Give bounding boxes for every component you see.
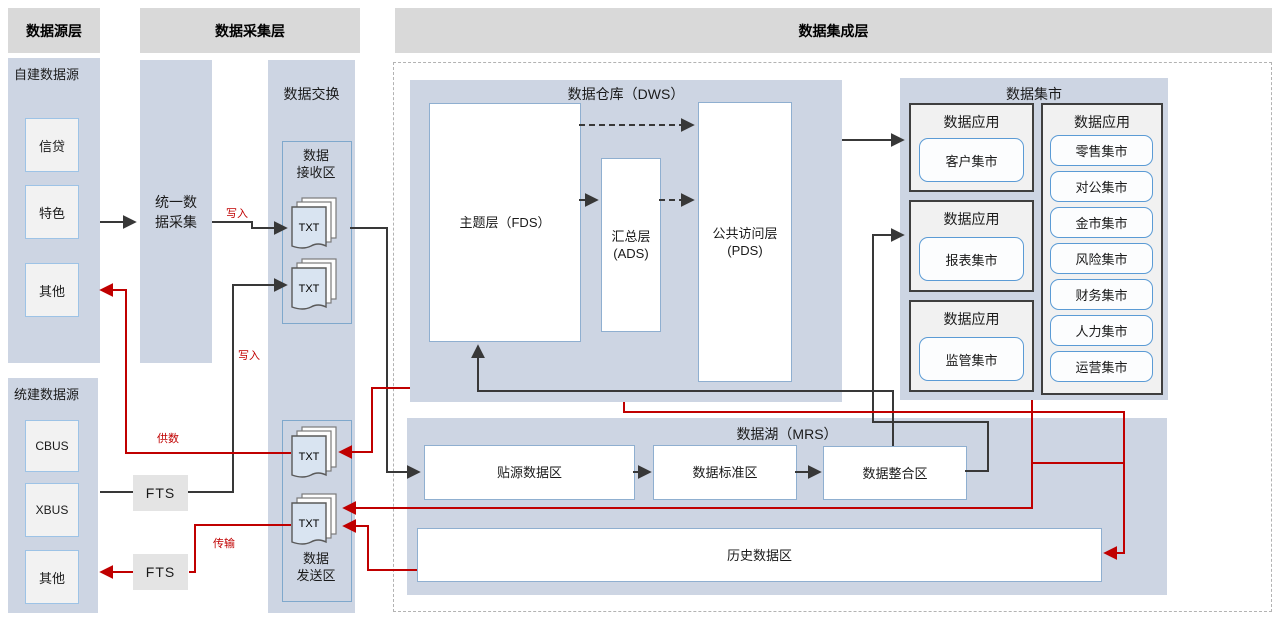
mart-gold: 金市集市: [1050, 207, 1153, 238]
source-box-special: 特色: [25, 185, 79, 239]
svg-text:TXT: TXT: [299, 451, 320, 463]
dws-title: 数据仓库（DWS）: [410, 84, 842, 104]
txt-file-icon: TXT: [291, 426, 337, 478]
fts-box-lower: FTS: [133, 554, 188, 590]
self-built-sources-title: 自建数据源: [14, 64, 100, 83]
flow-label-transfer: 传输: [213, 535, 235, 551]
data-exchange-title: 数据交换: [268, 84, 355, 104]
source-box-credit: 信贷: [25, 118, 79, 172]
data-receive-zone-label: 数据 接收区: [282, 147, 350, 181]
header-integration-layer: 数据集成层: [395, 8, 1272, 53]
receive-label-line1: 数据: [282, 147, 350, 164]
unified-data-collection-line2: 据采集: [155, 212, 197, 232]
receive-label-line2: 接收区: [282, 164, 350, 181]
pds-line1: 公共访问层: [712, 225, 777, 242]
pds-line2: (PDS): [727, 242, 762, 259]
mart-hr: 人力集市: [1050, 315, 1153, 346]
flow-label-write-2: 写入: [238, 347, 260, 363]
data-send-zone-label: 数据 发送区: [282, 550, 350, 584]
data-app-label: 数据应用: [911, 309, 1032, 329]
unified-sources-title: 统建数据源: [14, 384, 98, 403]
ads-line2: (ADS): [613, 245, 648, 262]
history-data-zone: 历史数据区: [417, 528, 1102, 582]
fds-box: 主题层（FDS）: [429, 103, 581, 342]
source-box-other-self: 其他: [25, 263, 79, 317]
data-app-label: 数据应用: [911, 112, 1032, 132]
svg-text:TXT: TXT: [299, 222, 320, 234]
mart-retail: 零售集市: [1050, 135, 1153, 166]
data-app-label: 数据应用: [911, 209, 1032, 229]
ads-box: 汇总层 (ADS): [601, 158, 661, 332]
send-label-line2: 发送区: [282, 567, 350, 584]
data-app-box-list: 数据应用 零售集市 对公集市 金市集市 风险集市 财务集市 人力集市 运营集市: [1041, 103, 1163, 395]
txt-file-icon: TXT: [291, 197, 337, 249]
header-collection-layer: 数据采集层: [140, 8, 360, 53]
pds-box: 公共访问层 (PDS): [698, 102, 792, 382]
svg-text:TXT: TXT: [299, 283, 320, 295]
send-label-line1: 数据: [282, 550, 350, 567]
mart-report: 报表集市: [919, 237, 1024, 281]
ads-line1: 汇总层: [611, 228, 650, 245]
data-app-box-regulatory: 数据应用 监管集市: [909, 300, 1034, 392]
data-app-box-customer: 数据应用 客户集市: [909, 103, 1034, 192]
mart-finance: 财务集市: [1050, 279, 1153, 310]
mrs-zone-source: 贴源数据区: [424, 445, 635, 500]
svg-text:TXT: TXT: [299, 518, 320, 530]
mart-risk: 风险集市: [1050, 243, 1153, 274]
flow-label-supply: 供数: [157, 430, 179, 446]
source-box-cbus: CBUS: [25, 420, 79, 472]
txt-file-icon: TXT: [291, 258, 337, 310]
mart-regulatory: 监管集市: [919, 337, 1024, 381]
txt-file-icon: TXT: [291, 493, 337, 545]
mrs-title: 数据湖（MRS）: [407, 424, 1167, 444]
unified-data-collection-line1: 统一数: [155, 192, 197, 212]
mart-operation: 运营集市: [1050, 351, 1153, 382]
mrs-zone-integration: 数据整合区: [823, 446, 967, 500]
architecture-diagram: 数据源层 数据采集层 数据集成层 自建数据源 信贷 特色 其他 统建数据源 CB…: [0, 0, 1280, 627]
mart-corporate: 对公集市: [1050, 171, 1153, 202]
data-app-box-report: 数据应用 报表集市: [909, 200, 1034, 292]
header-source-layer: 数据源层: [8, 8, 100, 53]
fts-box-upper: FTS: [133, 475, 188, 511]
data-mart-title: 数据集市: [900, 84, 1168, 104]
mart-customer: 客户集市: [919, 138, 1024, 182]
source-box-xbus: XBUS: [25, 483, 79, 537]
data-app-label: 数据应用: [1043, 112, 1161, 132]
mrs-zone-standard: 数据标准区: [653, 445, 797, 500]
unified-data-collection: 统一数 据采集: [140, 60, 212, 363]
source-box-other-unified: 其他: [25, 550, 79, 604]
flow-label-write-1: 写入: [226, 205, 248, 221]
